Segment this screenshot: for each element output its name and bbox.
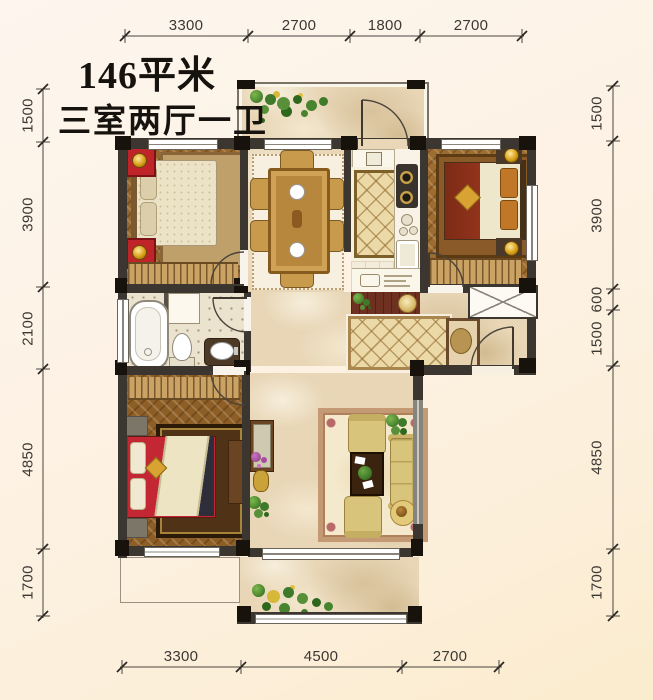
wall-bedroom1-right <box>240 148 248 250</box>
dim-right-2: 3900 <box>589 194 606 238</box>
pillow <box>500 168 518 198</box>
vase-gold <box>253 470 269 492</box>
wall-bedroom3-top <box>118 366 213 375</box>
wardrobe-third <box>128 377 240 400</box>
wardrobe-second <box>430 258 522 284</box>
dim-left-2: 3900 <box>20 193 37 237</box>
armchair <box>348 414 386 454</box>
pillow <box>130 442 146 474</box>
pillow <box>500 200 518 230</box>
dim-left-5: 1700 <box>20 561 37 605</box>
window-bedroom3 <box>144 547 220 557</box>
dim-right-5: 4850 <box>589 436 606 480</box>
plant-cluster-icon <box>252 584 265 597</box>
burner-icon <box>399 170 414 185</box>
door-gap-bedroom2 <box>428 285 463 293</box>
door-gap-bathroom <box>244 297 251 331</box>
utensil-lines <box>384 285 410 287</box>
wall-bedroom3-right <box>242 366 250 556</box>
dim-right-1: 1500 <box>589 92 606 136</box>
paper <box>354 456 365 465</box>
ceiling-lamp-icon <box>398 294 417 313</box>
pillar <box>410 136 426 150</box>
pillar <box>408 606 422 622</box>
dim-bottom-3: 2700 <box>428 648 472 665</box>
wall-kitchen-left <box>344 148 351 252</box>
dim-bottom-1: 3300 <box>159 648 203 665</box>
lamp-icon <box>132 245 147 260</box>
dim-right-6: 1700 <box>589 561 606 605</box>
dim-left-1: 1500 <box>20 94 37 138</box>
terrace-outline <box>120 557 240 603</box>
wall-bathroom-top <box>126 284 248 293</box>
plant-icon <box>358 466 372 480</box>
plate <box>289 242 305 258</box>
foyer-mat <box>348 316 450 370</box>
plant-icon <box>353 293 364 304</box>
pillar <box>236 540 250 556</box>
pillar <box>341 136 357 150</box>
floorplan-canvas: 146平米 三室两厅一卫 <box>0 0 653 700</box>
pillar <box>519 278 536 293</box>
armchair <box>344 496 382 538</box>
door-gap-balcony <box>358 139 408 149</box>
window-dining <box>264 139 332 150</box>
kitchenware <box>409 226 418 235</box>
pillar <box>519 136 536 150</box>
utensil-lines <box>384 280 406 282</box>
entry-rug-medallion <box>450 328 472 354</box>
pillar <box>410 360 424 376</box>
dim-top-4: 2700 <box>449 17 493 34</box>
burner-icon <box>399 190 414 205</box>
door-gap-bedroom3 <box>213 367 246 375</box>
balcony-bottom-floor <box>239 557 419 617</box>
cutting-board <box>360 274 380 287</box>
pillow <box>140 202 157 236</box>
wardrobe-master <box>128 262 238 285</box>
window-bedroom2 <box>441 139 501 150</box>
kitchen-sink <box>396 240 419 270</box>
pillar <box>519 358 536 373</box>
wall-bedroom2-left <box>420 148 428 285</box>
table-centerpiece <box>292 210 302 228</box>
plan-subtitle-layout: 三室两厅一卫 <box>58 94 268 142</box>
nightstand-gray <box>124 416 148 436</box>
dim-bottom-2: 4500 <box>299 648 343 665</box>
faucet-icon <box>234 347 238 355</box>
pillar <box>115 540 129 556</box>
pillow <box>130 478 146 510</box>
pillar <box>407 80 425 89</box>
dim-right-3: 600 <box>589 278 606 322</box>
dim-top-2: 2700 <box>277 17 321 34</box>
side-table-item <box>396 506 407 517</box>
bathtub-drain <box>144 348 152 356</box>
wall-living-right-a <box>413 373 423 400</box>
window-bathroom <box>117 299 129 363</box>
pillar <box>237 80 255 89</box>
utensil-lines <box>384 275 412 277</box>
plan-title-area: 146平米 <box>78 44 216 99</box>
sliding-door-balcony <box>262 548 400 560</box>
dim-left-4: 4850 <box>20 438 37 482</box>
pillar <box>115 278 127 293</box>
bath-cabinet <box>168 293 200 324</box>
toilet-bowl <box>172 333 192 361</box>
lamp-icon <box>504 148 519 163</box>
door-gap-bedroom1 <box>240 250 248 286</box>
flowers-icon <box>251 452 261 462</box>
pillar <box>411 539 423 556</box>
dim-top-3: 1800 <box>363 17 407 34</box>
dim-left-3: 2100 <box>20 307 37 351</box>
nightstand-gray <box>124 518 148 538</box>
kitchen-sink-small <box>366 152 382 166</box>
window-balcony-bottom <box>255 614 407 624</box>
kitchenware <box>401 214 413 226</box>
washbasin-bowl <box>210 342 234 360</box>
pillar <box>237 606 251 622</box>
kitchen-island <box>354 170 398 258</box>
plate <box>289 184 305 200</box>
lamp-icon <box>132 153 147 168</box>
kitchenware <box>399 227 408 236</box>
window-bedroom2-right <box>526 185 538 261</box>
dim-right-4: 1500 <box>589 317 606 361</box>
lamp-icon <box>504 241 519 256</box>
door-gap-entry <box>472 366 514 375</box>
plant-icon <box>386 414 399 427</box>
dim-top-1: 3300 <box>164 17 208 34</box>
wall-living-right-window <box>413 400 423 524</box>
